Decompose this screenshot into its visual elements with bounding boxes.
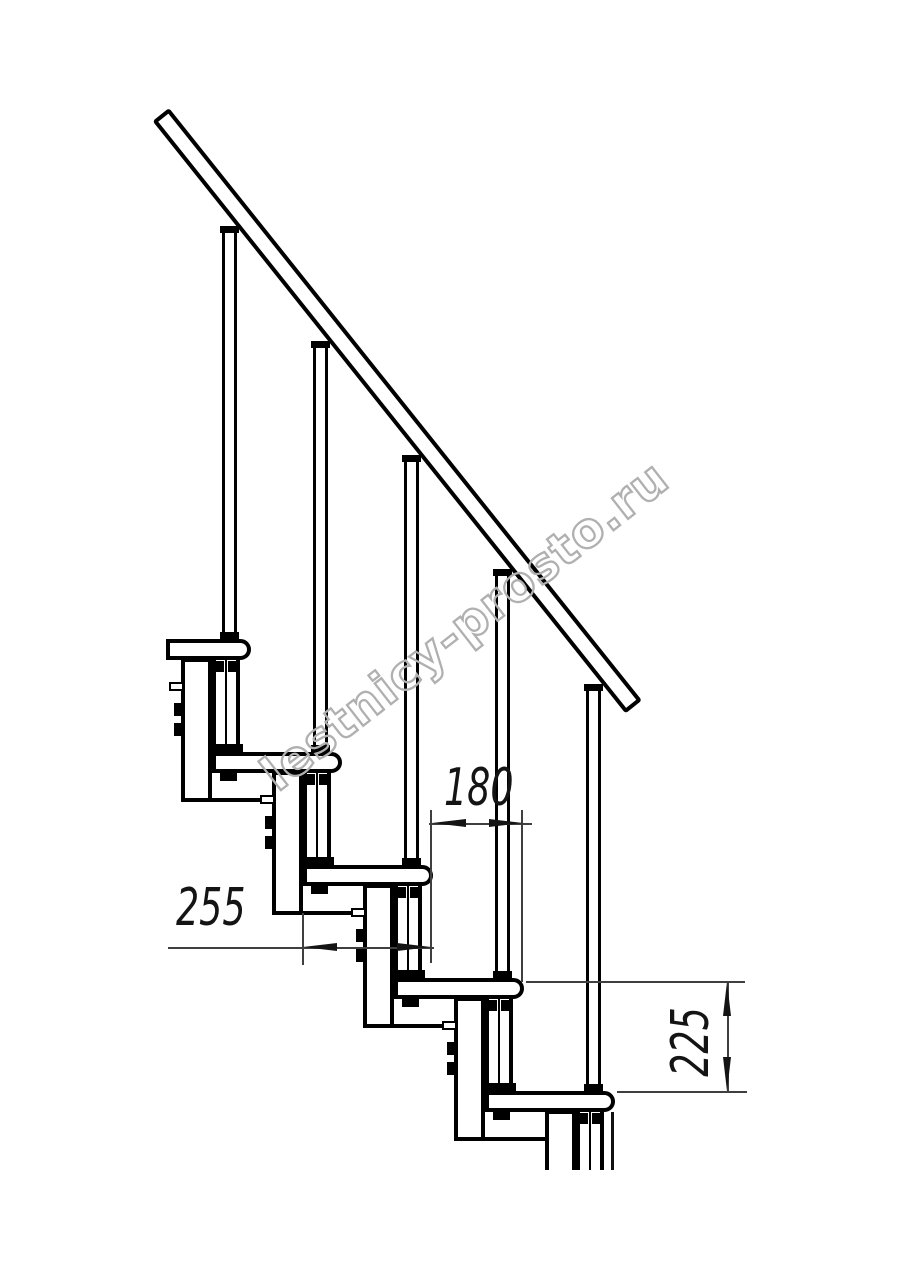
- column-centerline: [407, 886, 409, 972]
- mount-tab: [351, 908, 366, 917]
- column-bolt: [488, 1000, 497, 1011]
- column-bolt: [215, 661, 224, 672]
- arrow-going-right: [489, 819, 523, 827]
- dim-line-depth: [168, 947, 434, 949]
- baluster-cap: [584, 684, 603, 691]
- mount-tab-bolt: [447, 1042, 455, 1055]
- dimension-label-rise: 225: [665, 1004, 717, 1081]
- ext-line-going-left: [430, 810, 432, 963]
- column-bolt: [228, 661, 237, 672]
- dimension-label-depth: 255: [176, 882, 245, 934]
- baluster-body: [586, 690, 601, 1085]
- mount-tab-bolt: [174, 723, 182, 736]
- ext-line-going-right: [521, 810, 523, 982]
- stringer-plate: [454, 997, 485, 1141]
- baluster-cap: [220, 226, 239, 233]
- column-centerline: [316, 773, 318, 859]
- ext-line-rise-top: [526, 981, 745, 983]
- column-centerline: [498, 999, 500, 1085]
- tread: [485, 1091, 615, 1112]
- arrow-rise-up: [723, 982, 731, 1016]
- mount-tab-bolt: [356, 949, 364, 962]
- column-bolt: [592, 1113, 601, 1124]
- mount-tab-bolt: [447, 1062, 455, 1075]
- mount-tab-bolt: [265, 836, 273, 849]
- staircase-drawing: 180 255 225 lestnicy-prosto.ru: [0, 0, 914, 1280]
- mount-tab-bolt: [174, 703, 182, 716]
- tread-nose-line: [611, 1112, 614, 1170]
- column-bolt: [579, 1113, 588, 1124]
- mount-tab-bolt: [265, 816, 273, 829]
- mount-tab: [169, 682, 184, 691]
- arrow-depth-left: [303, 943, 337, 951]
- column-bolt: [501, 1000, 510, 1011]
- arrow-depth-right: [397, 943, 431, 951]
- stringer-plate: [545, 1110, 576, 1170]
- stringer-plate: [363, 884, 394, 1028]
- tread: [394, 978, 524, 999]
- mount-tab: [442, 1021, 457, 1030]
- column-bolt: [319, 774, 328, 785]
- stringer-plate: [181, 658, 212, 802]
- tread: [166, 639, 251, 660]
- arrow-rise-down: [723, 1057, 731, 1091]
- dimension-label-going: 180: [444, 762, 513, 814]
- baluster-body: [313, 347, 328, 746]
- column-bolt: [397, 887, 406, 898]
- column-centerline: [589, 1112, 591, 1170]
- baluster-cap: [402, 455, 421, 462]
- ext-line-depth-left: [302, 913, 304, 965]
- baluster-body: [222, 232, 237, 633]
- column-bolt: [410, 887, 419, 898]
- mount-tab-bolt: [356, 929, 364, 942]
- arrow-going-left: [432, 819, 466, 827]
- tread: [303, 865, 433, 886]
- column-centerline: [225, 660, 227, 746]
- baluster-cap: [311, 341, 330, 348]
